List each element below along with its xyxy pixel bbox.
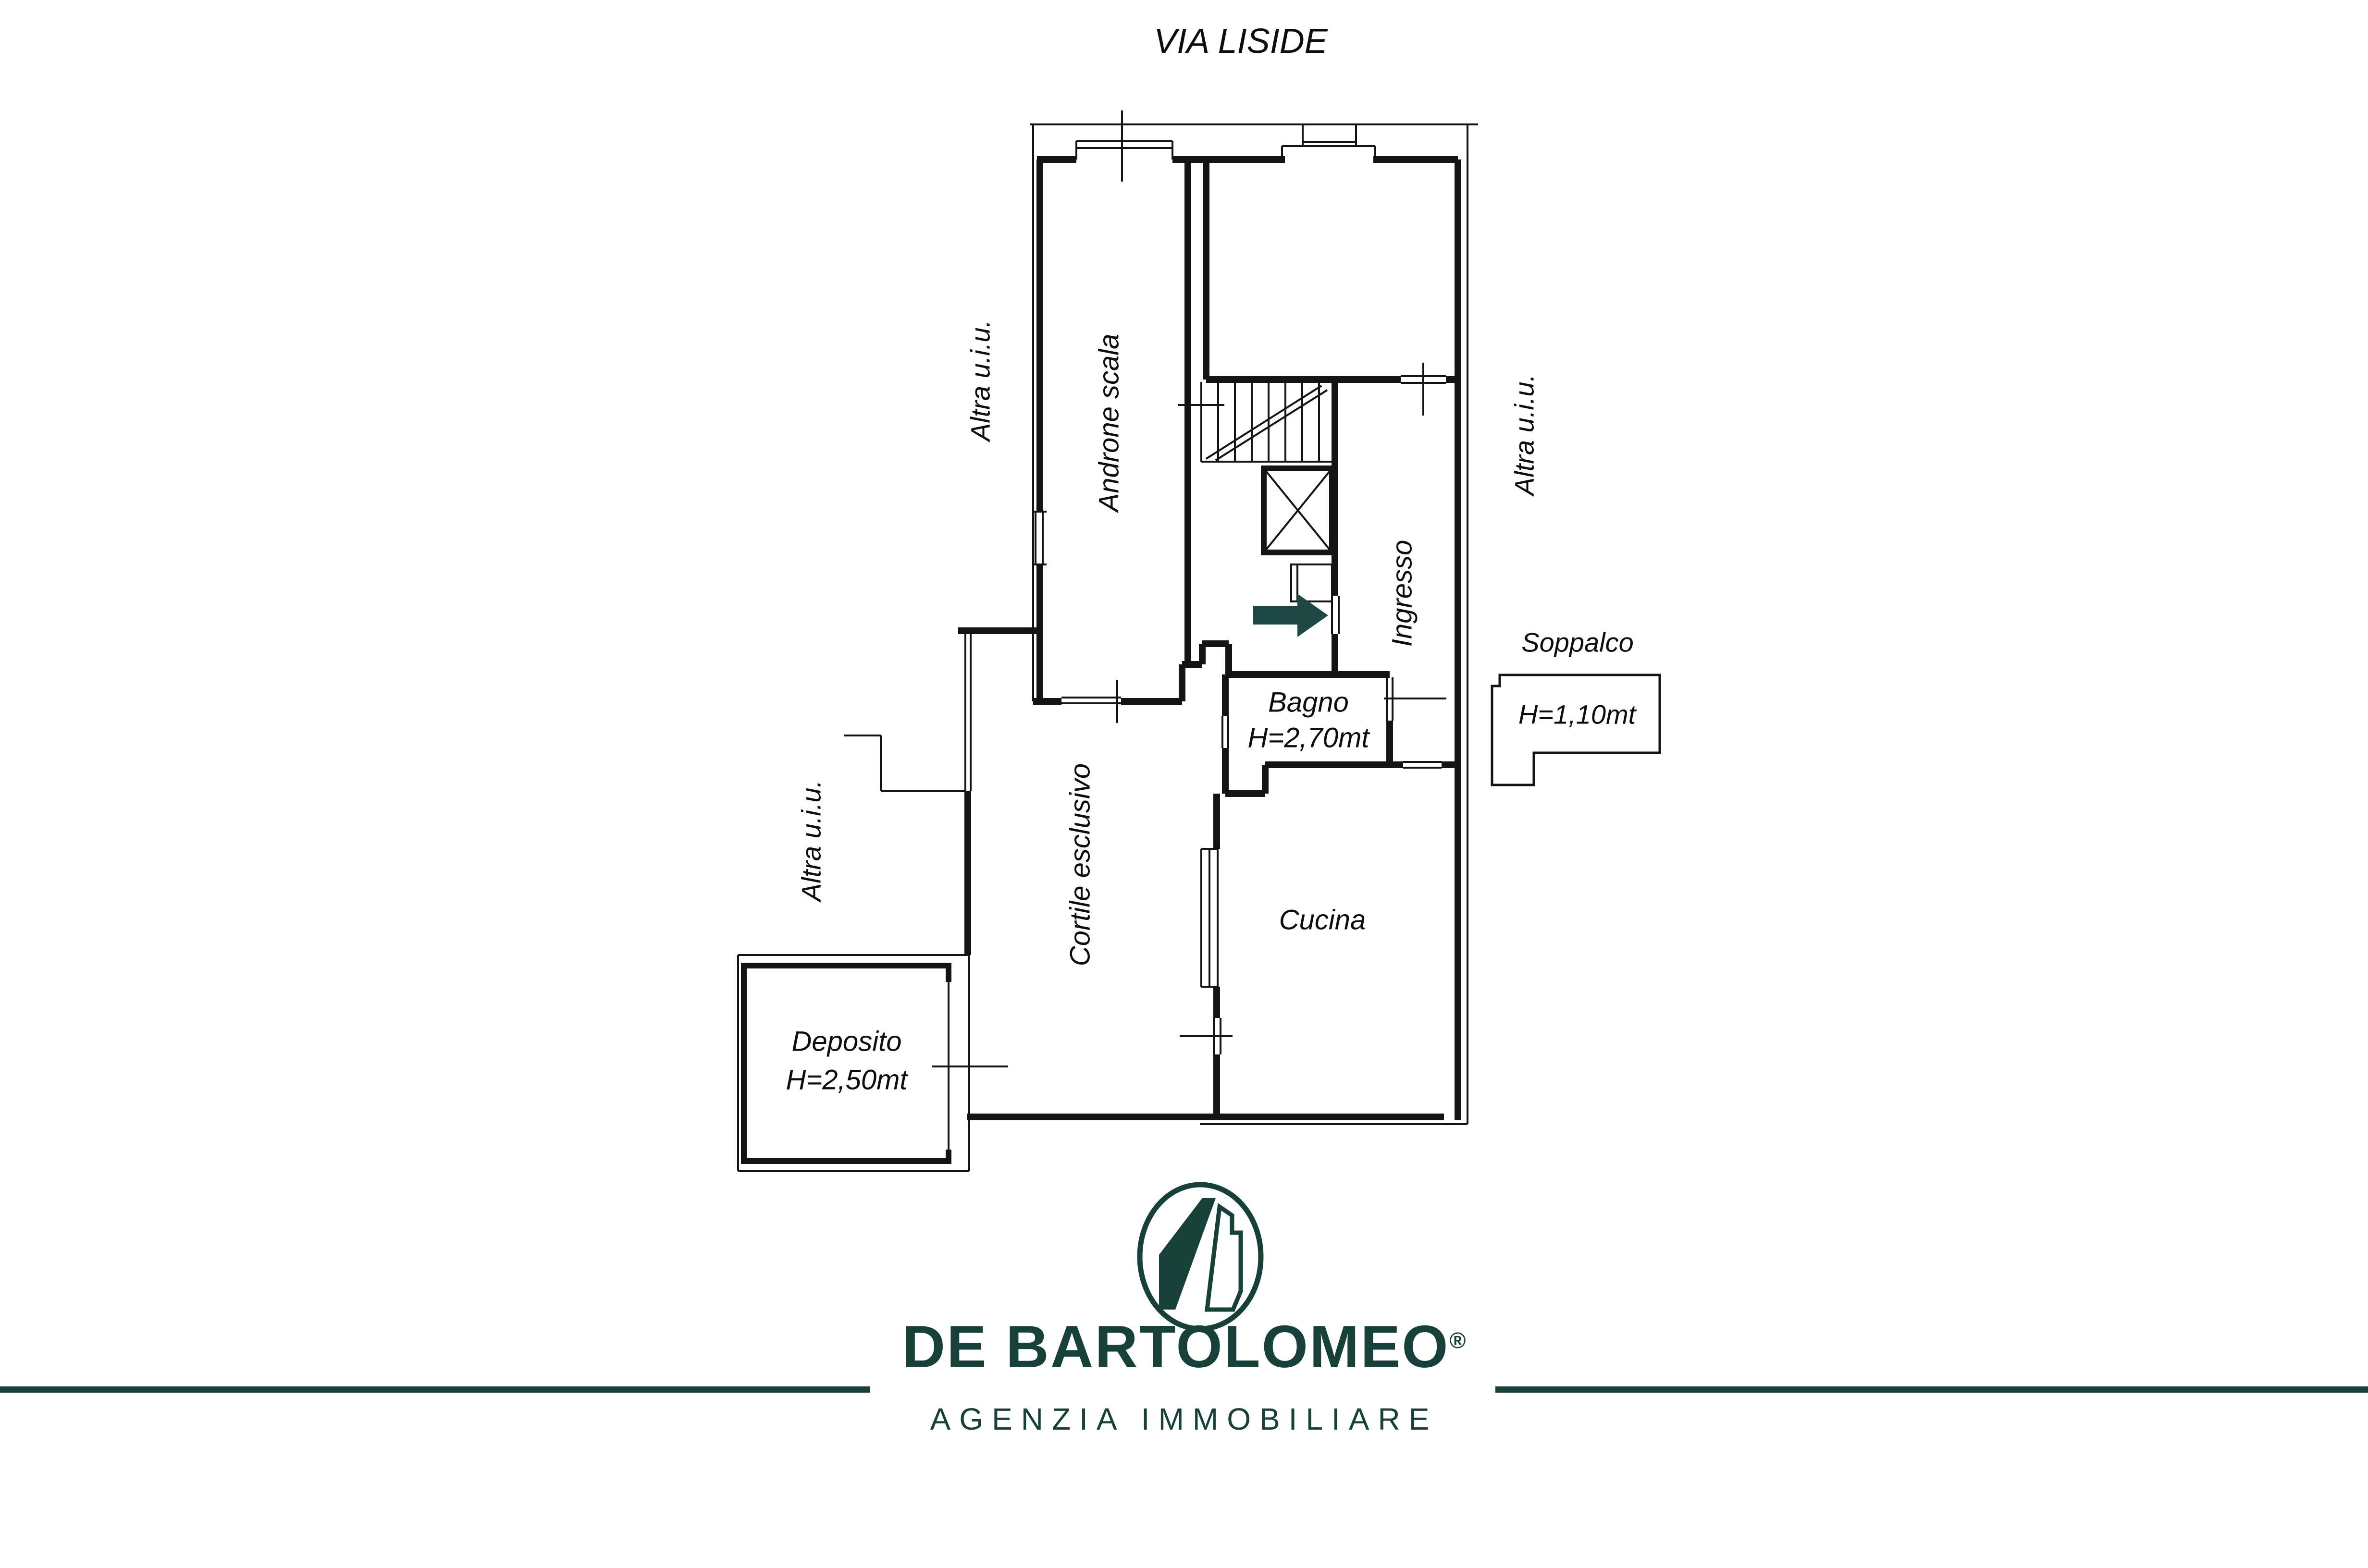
label-ingresso: Ingresso [1387,540,1418,647]
deposito-outer [738,955,969,1171]
label-bagno-height: H=2,70mt [1247,723,1370,754]
street-title: VIA LISIDE [1154,22,1328,61]
entry-arrow-shaft [1253,606,1299,625]
label-altra-uiu-top: Altra u.i.u. [965,320,996,442]
unit-entrance-recess [1282,124,1375,159]
ingresso-cucina-door [1403,762,1442,768]
label-altra-uiu-left: Altra u.i.u. [796,780,826,903]
divider-rule-right [1495,1386,2368,1393]
deposito-walls [744,966,949,1161]
label-deposito-height: H=2,50mt [786,1065,909,1096]
elevator-x [1264,468,1332,552]
neighbor-stubs [844,735,965,791]
agency-logo-mark [1140,1185,1261,1329]
unit-door [1401,363,1446,416]
label-deposito: Deposito [792,1026,902,1057]
floorplan-page: VIA LISIDE [0,0,2368,1568]
androne-door [1061,698,1121,703]
cucina-door [1180,1018,1233,1054]
label-soppalco-height: H=1,10mt [1518,699,1637,730]
label-cortile: Cortile esclusivo [1065,763,1096,966]
registered-mark: ® [1450,1328,1466,1353]
divider-rule-left [0,1386,870,1393]
label-altra-uiu-right: Altra u.i.u. [1509,374,1540,497]
label-androne: Androne scala [1094,334,1125,514]
cucina-window [1201,849,1218,987]
left-wall-window [1033,512,1047,564]
entry-door [1332,596,1339,634]
stairs-diagonal [1206,386,1327,460]
soppalco-outline [1492,675,1660,785]
bagno-right-window [1384,677,1446,721]
brand-text: DE BARTOLOMEO [902,1314,1450,1380]
brand-tagline: AGENZIA IMMOBILIARE [0,1404,2368,1434]
brand-name: DE BARTOLOMEO® [0,1317,2368,1377]
bagno-left-window [1222,716,1228,748]
cortile-left-upper [965,631,971,791]
room-labels: Androne scala Ingresso Bagno H=2,70mt Cu… [786,320,1637,1096]
shaft-box [1291,564,1332,601]
label-soppalco: Soppalco [1521,627,1634,658]
entry-arrow-head [1297,594,1328,637]
label-bagno: Bagno [1268,687,1349,718]
logo-building-tower [1207,1207,1241,1310]
label-cucina: Cucina [1279,905,1366,936]
thick-walls [744,159,1458,1161]
